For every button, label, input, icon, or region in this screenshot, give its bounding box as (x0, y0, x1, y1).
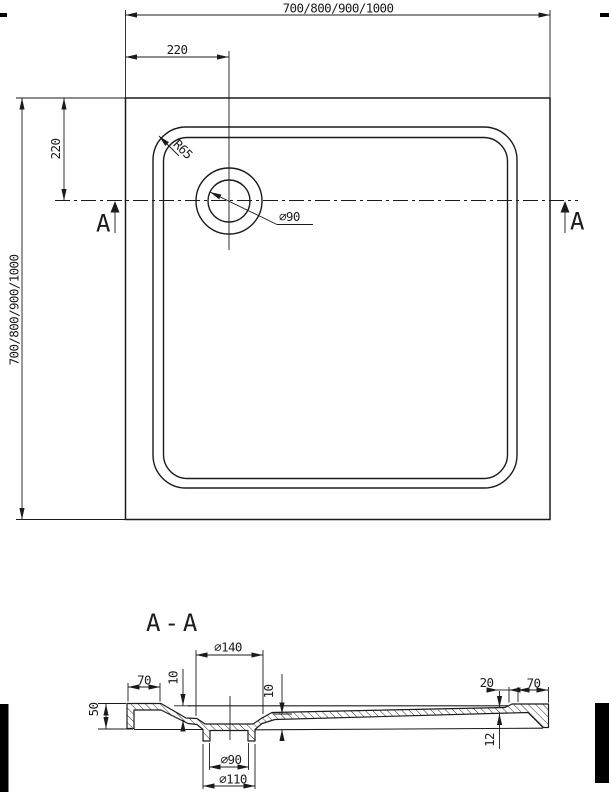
scan-mark-top-right (600, 13, 609, 17)
left-depth-label: 10 (166, 671, 181, 685)
section-cut-label-left: A (96, 210, 111, 238)
basin-outer-edge (153, 127, 517, 488)
drain-diameter-label: ⌀90 (279, 209, 300, 224)
section-view: A-A ⌀140 70 10 (86, 609, 549, 789)
overall-height-label: 700/800/900/1000 (7, 255, 22, 366)
scan-mark-right (595, 703, 609, 783)
scan-mark-bottom-left (0, 704, 9, 792)
section-cut-label-right: A (570, 208, 585, 236)
technical-drawing: 700/800/900/1000 220 700/800/900/1000 22… (0, 0, 609, 792)
drain-offset-x-label: 220 (167, 42, 188, 57)
left-height-label: 50 (86, 703, 101, 717)
section-title: A-A (146, 609, 201, 637)
dim-flange-diameter: ⌀140 (196, 640, 263, 717)
dim-overall-width: 700/800/900/1000 (126, 1, 551, 16)
section-arrow-icon (111, 201, 120, 213)
right-thickness-label: 12 (482, 733, 497, 747)
dim-corner-radius: R65 (159, 136, 196, 162)
section-cut-marker-left: A (96, 201, 120, 238)
scan-mark-top-left (0, 13, 7, 17)
tray-outline-top (126, 98, 551, 520)
right-rim-label: 70 (527, 676, 541, 691)
top-view: 700/800/900/1000 220 700/800/900/1000 22… (7, 1, 586, 520)
left-rim-label: 70 (137, 673, 151, 688)
dim-drain-offset-x: 220 (126, 42, 229, 57)
corner-radius-label: R65 (170, 137, 195, 162)
dim-right-rim: 70 (518, 676, 549, 703)
dim-overall-height: 700/800/900/1000 (7, 98, 23, 520)
right-step-label: 20 (480, 675, 494, 690)
section-cut-marker-right: A (561, 201, 586, 236)
drain-bore-label: ⌀90 (221, 752, 242, 767)
section-arrow-icon (561, 201, 570, 213)
drawing-page: 700/800/900/1000 220 700/800/900/1000 22… (0, 0, 609, 792)
dim-drain-bore: ⌀90 (209, 743, 249, 770)
dim-left-rim: 70 (128, 673, 160, 702)
drain-spigot-label: ⌀110 (219, 772, 247, 787)
dim-drain-offset-y: 220 (48, 98, 64, 201)
overall-width-label: 700/800/900/1000 (283, 1, 394, 16)
right-depth-label: 10 (261, 685, 276, 699)
dim-left-height: 50 (86, 703, 133, 729)
drain-offset-y-label: 220 (48, 139, 63, 160)
dim-right-thickness: 12 (482, 691, 500, 749)
flange-diameter-label: ⌀140 (214, 640, 242, 655)
basin-inner-edge (164, 138, 508, 479)
